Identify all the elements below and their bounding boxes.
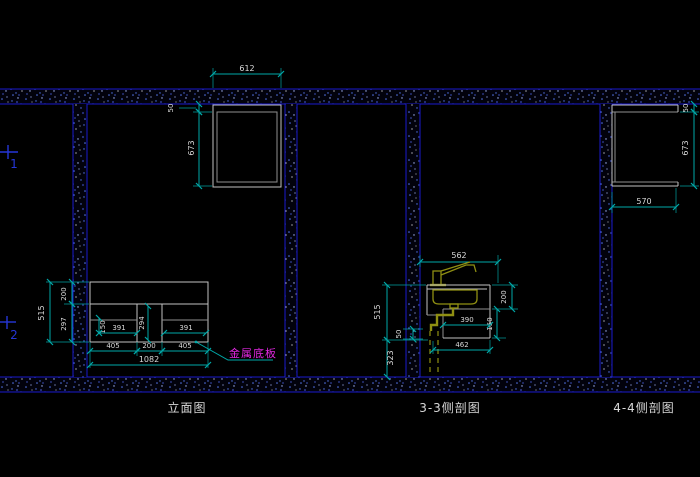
dim-text-1082: 1082 (139, 355, 159, 364)
wall-column-1 (73, 104, 87, 377)
ceiling-slab (0, 89, 700, 104)
dim-text-s33-515: 515 (373, 304, 382, 319)
dim-text-297: 297 (60, 317, 68, 330)
wall-column-4 (600, 104, 612, 377)
dim-text-405-left: 405 (106, 342, 119, 350)
floor-slab (0, 377, 700, 392)
wall-column-2 (285, 104, 297, 377)
dim-text-570: 570 (636, 197, 651, 206)
grid-marker-2-label: 2 (10, 328, 18, 342)
annotation-metal-base-plate: 金属底板 (229, 346, 277, 360)
dim-text-673: 673 (187, 140, 196, 155)
dim-text-391-left: 391 (112, 324, 125, 332)
dim-text-294: 294 (138, 316, 146, 330)
view-title-section-4-4: 4-4侧剖图 (613, 401, 675, 415)
view-title-section-3-3: 3-3侧剖图 (419, 401, 481, 415)
dim-text-562: 562 (451, 251, 466, 260)
dim-text-405-right: 405 (178, 342, 191, 350)
grid-marker-1-label: 1 (10, 157, 18, 171)
dim-text-s44-673: 673 (681, 140, 690, 155)
dim-text-s33-50: 50 (395, 330, 403, 339)
view-title-elevation: 立面图 (167, 400, 206, 415)
dim-text-612: 612 (239, 64, 254, 73)
dim-text-s33-323: 323 (386, 350, 395, 365)
dim-text-391-right: 391 (179, 324, 192, 332)
cad-canvas: 1 2 612 50 673 (0, 0, 700, 477)
dim-text-s33-462: 462 (455, 341, 468, 349)
dim-text-200-middle: 200 (142, 342, 155, 350)
dim-text-200: 200 (60, 287, 68, 300)
cad-drawing-viewport: 1 2 612 50 673 (0, 0, 700, 477)
dim-text-515: 515 (37, 305, 46, 320)
dim-text-s33-390: 390 (460, 316, 473, 324)
dim-text-s33-200: 200 (500, 290, 508, 303)
drawing-background (0, 0, 700, 477)
dim-text-s33-150: 150 (486, 317, 494, 330)
dim-text-ceiling-gap-50: 50 (167, 104, 175, 113)
dim-text-s44-50: 50 (682, 104, 690, 113)
dim-text-150: 150 (99, 320, 107, 333)
